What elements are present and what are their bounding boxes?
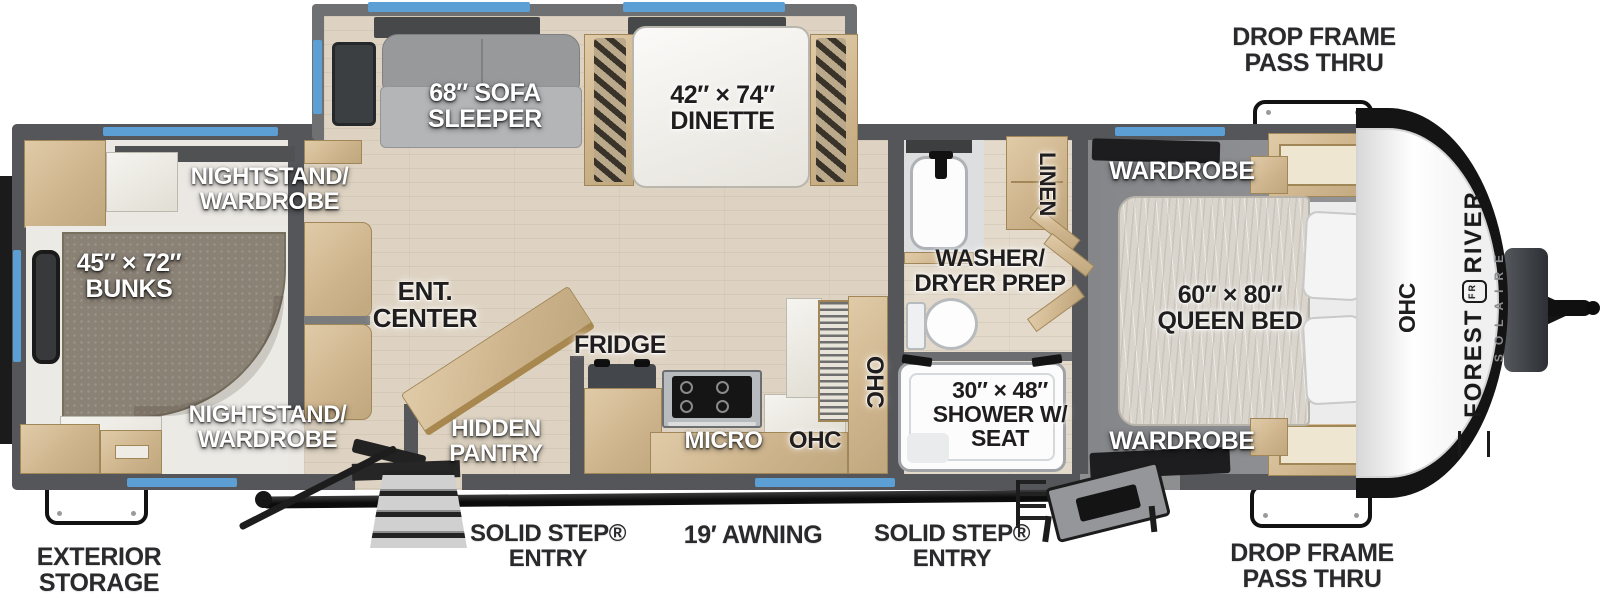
window-kitchen-bottom	[755, 478, 895, 487]
label-line: NIGHTSTAND/	[162, 164, 377, 189]
screw-icon	[1354, 513, 1359, 518]
label-line: NIGHTSTAND/	[160, 402, 375, 427]
label-ohc-kitchen-counter: OHC	[861, 342, 887, 422]
step-tread	[1075, 484, 1141, 522]
label-wardrobe-top: WARDROBE	[1098, 158, 1266, 184]
label-micro: MICRO	[676, 428, 771, 453]
screw-icon	[1263, 513, 1268, 518]
label-line: BUNKS	[58, 276, 200, 302]
brand-logo: FORESTFRRIVER SOLAIRE	[1458, 144, 1506, 464]
stove	[662, 370, 762, 428]
bunk-cabinet-bottom	[100, 430, 162, 474]
label-line: DRYER PREP	[905, 271, 1075, 296]
burner-icon	[716, 381, 729, 394]
window-slideout-side	[313, 40, 322, 114]
label-exterior-storage: EXTERIOR STORAGE	[8, 544, 190, 597]
label-dinette: 42″ × 74″ DINETTE	[640, 82, 805, 135]
awning-end-cap	[255, 491, 272, 508]
label-line: PANTRY	[420, 441, 572, 466]
label-drop-frame-bottom: DROP FRAME PASS THRU	[1198, 540, 1426, 593]
label-line: QUEEN BED	[1150, 308, 1310, 334]
toilet-bowl	[924, 298, 978, 350]
dinette-bench-left-cushion	[594, 38, 626, 182]
window-bunkroom-top	[103, 127, 278, 136]
label-line: LINEN	[1036, 142, 1059, 226]
label-line: OHC	[780, 428, 850, 453]
label-linen: LINEN	[1033, 142, 1059, 226]
label-line: OHC	[1395, 272, 1419, 344]
label-ent-center: ENT. CENTER	[355, 278, 495, 333]
bath-sink	[910, 156, 968, 250]
propane-cover	[1504, 248, 1548, 372]
ac-vent	[818, 300, 850, 422]
cabinet-slot	[115, 445, 149, 459]
label-hidden-pantry: HIDDEN PANTRY	[420, 416, 572, 466]
logo-dash	[1487, 431, 1490, 457]
window-slideout-dinette	[623, 2, 785, 12]
label-line: SHOWER W/	[920, 402, 1080, 426]
fridge-handle	[594, 359, 610, 367]
dinette-bench-right-cushion	[816, 38, 846, 182]
slideout-window-frame	[332, 42, 376, 126]
label-line: 19′ AWNING	[660, 522, 846, 548]
bunk-nightstand-top	[24, 140, 106, 228]
screw-icon	[1266, 110, 1271, 115]
label-line: ENTRY	[462, 546, 634, 571]
window-slideout-sofa	[368, 2, 530, 12]
label-line: 60″ × 80″	[1150, 282, 1310, 308]
burner-icon	[680, 400, 693, 413]
label-line: SOLID STEP®	[462, 521, 634, 546]
label-line: SEAT	[920, 426, 1080, 450]
label-line: ENTRY	[866, 546, 1038, 571]
label-wardrobe-bottom: WARDROBE	[1098, 428, 1266, 454]
brand-word-forest: FOREST	[1460, 309, 1487, 418]
label-line: MICRO	[676, 428, 771, 453]
label-line: 42″ × 74″	[640, 82, 805, 108]
label-bunks: 45″ × 72″ BUNKS	[58, 250, 200, 303]
corner-cabinet	[304, 140, 362, 164]
label-line: DROP FRAME	[1198, 540, 1426, 566]
label-line: 30″ × 48″	[920, 378, 1080, 402]
label-line: WARDROBE	[162, 189, 377, 214]
label-line: FRIDGE	[560, 332, 680, 358]
label-queen-bed: 60″ × 80″ QUEEN BED	[1150, 282, 1310, 335]
kitchen-counter-column	[786, 298, 822, 398]
label-washer-dryer-prep: WASHER/ DRYER PREP	[905, 246, 1075, 296]
logo-dash	[1458, 431, 1461, 457]
label-nightstand-wardrobe-top: NIGHTSTAND/ WARDROBE	[162, 164, 377, 214]
entry-steps-front	[370, 470, 467, 548]
label-ohc-kitchen-lower: OHC	[780, 428, 850, 453]
label-sofa-sleeper: 68″ SOFA SLEEPER	[395, 80, 575, 133]
label-line: STORAGE	[8, 570, 190, 596]
label-line: WARDROBE	[1098, 158, 1266, 184]
stove-handle	[668, 422, 756, 426]
drop-frame-door-bottom	[1250, 484, 1372, 528]
bunk-window	[32, 250, 60, 364]
label-line: DINETTE	[640, 108, 805, 134]
label-line: OHC	[862, 342, 887, 422]
faucet-icon	[929, 151, 953, 159]
label-fridge: FRIDGE	[560, 332, 680, 358]
fridge-handle	[634, 359, 650, 367]
screw-icon	[131, 511, 136, 516]
label-line: CENTER	[355, 305, 495, 332]
brand-sub: SOLAIRE	[1493, 144, 1506, 464]
burner-icon	[716, 400, 729, 413]
label-line: SOLID STEP®	[866, 521, 1038, 546]
window-bottom-left	[127, 478, 237, 487]
label-entry-rear: SOLID STEP® ENTRY	[866, 521, 1038, 571]
forest-river-monogram-icon: FR	[1462, 280, 1487, 303]
label-entry-front: SOLID STEP® ENTRY	[462, 521, 634, 571]
label-line: ENT.	[355, 278, 495, 305]
label-line: SLEEPER	[395, 106, 575, 132]
label-shower: 30″ × 48″ SHOWER W/ SEAT	[920, 378, 1080, 450]
hitch-coupler-ball	[1586, 301, 1600, 315]
label-line: 68″ SOFA	[395, 80, 575, 106]
burner-icon	[680, 381, 693, 394]
cooktop	[672, 376, 752, 418]
screw-icon	[57, 511, 62, 516]
label-line: WARDROBE	[160, 427, 375, 452]
label-line: DROP FRAME	[1200, 24, 1428, 50]
pantry-wall-right	[570, 356, 584, 474]
brand-word-river: RIVER	[1460, 190, 1487, 273]
label-drop-frame-top: DROP FRAME PASS THRU	[1200, 24, 1428, 77]
label-nightstand-wardrobe-bottom: NIGHTSTAND/ WARDROBE	[160, 402, 375, 452]
label-line: WARDROBE	[1098, 428, 1266, 454]
toilet-tank	[906, 302, 926, 350]
label-line: HIDDEN	[420, 416, 572, 441]
brand-line: FORESTFRRIVER	[1458, 144, 1490, 464]
label-line: 45″ × 72″	[58, 250, 200, 276]
label-line: PASS THRU	[1200, 50, 1428, 76]
floorplan-canvas: FORESTFRRIVER SOLAIRE 68″ SOFA SLEEPER 4…	[0, 0, 1600, 610]
label-line: EXTERIOR	[8, 544, 190, 570]
window-bedroom-top	[1115, 127, 1225, 136]
window-rear-wall	[13, 250, 21, 362]
label-line: WASHER/	[905, 246, 1075, 271]
label-awning: 19′ AWNING	[660, 522, 846, 548]
label-line: PASS THRU	[1198, 566, 1426, 592]
bunk-nightstand-bottom	[20, 424, 100, 474]
label-ohc-bedroom: OHC	[1395, 272, 1421, 344]
